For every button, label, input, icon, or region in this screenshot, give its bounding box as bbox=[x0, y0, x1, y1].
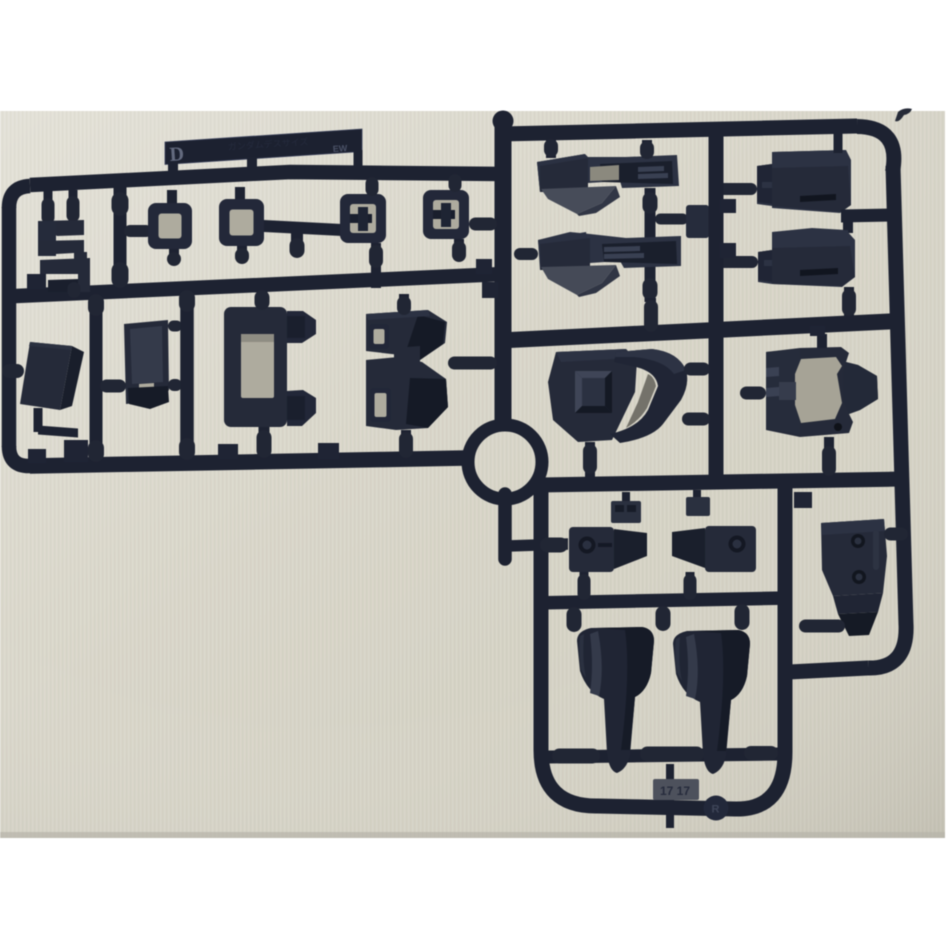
svg-text:EW: EW bbox=[332, 143, 348, 154]
svg-text:17 17: 17 17 bbox=[660, 784, 690, 798]
svg-text:R: R bbox=[712, 804, 720, 816]
